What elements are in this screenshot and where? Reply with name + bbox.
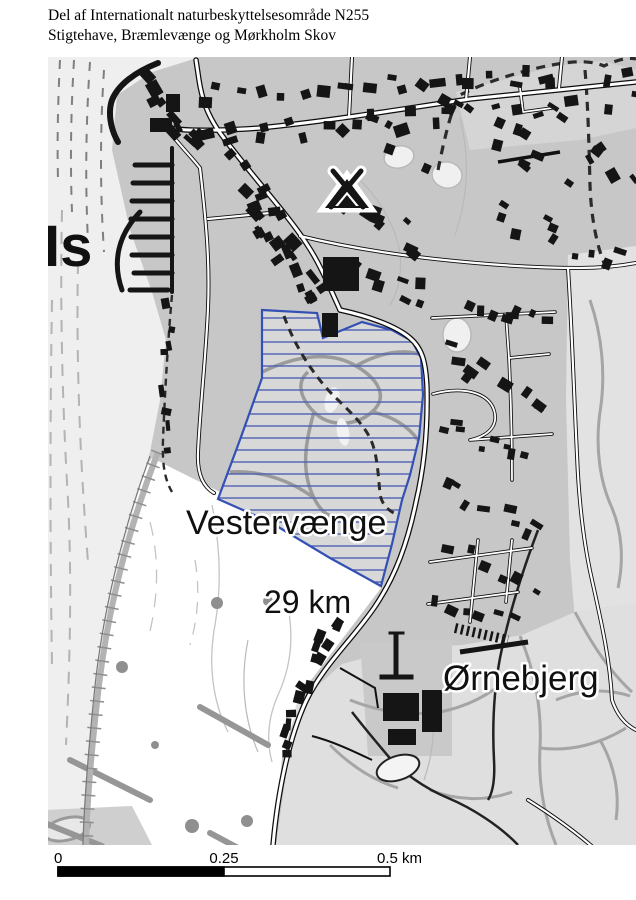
scale-bar-filled <box>58 867 224 876</box>
scale-tick-end: 0.5 km <box>377 850 422 867</box>
label-distance: 29 km <box>264 584 351 620</box>
label-area-name: Vestervænge <box>186 504 386 542</box>
scale-tick-start: 0 <box>54 850 62 867</box>
map-image: Is Vestervænge 29 km Ørnebjerg 0 0.25 0.… <box>0 0 636 900</box>
scale-tick-mid: 0.25 <box>209 850 238 867</box>
scale-bar: 0 0.25 0.5 km <box>54 850 422 876</box>
map-content: Is Vestervænge 29 km Ørnebjerg <box>0 0 636 900</box>
label-place-partial: Is <box>44 214 92 279</box>
label-place-east: Ørnebjerg <box>443 659 599 698</box>
